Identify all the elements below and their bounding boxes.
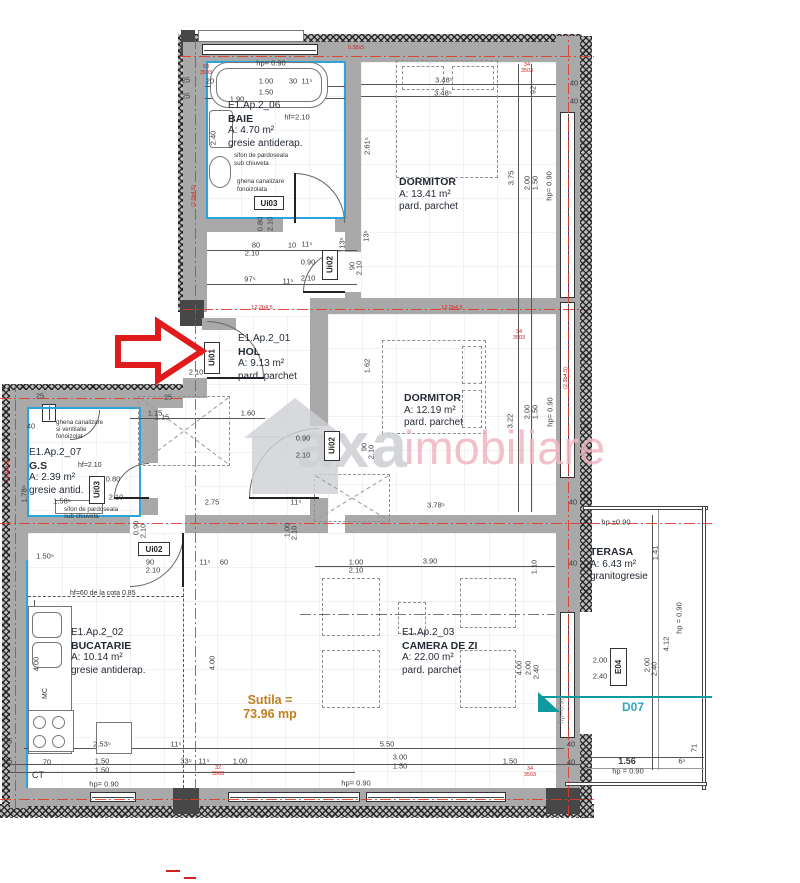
hatch-right-upper	[580, 36, 592, 612]
door-label-ui01: Ui01	[204, 342, 220, 374]
dimension-label: 4.12	[662, 637, 671, 652]
dimension-label: 2.40	[532, 665, 541, 680]
wall-dorm1-left-a	[345, 232, 361, 252]
dimension-label: hp = 0.90	[612, 767, 644, 776]
axis-v-left	[195, 36, 196, 790]
dimension-label: 2.10	[146, 566, 161, 575]
room-area: A: 13.41 m²	[399, 189, 458, 202]
room-area: A: 12.19 m²	[404, 405, 463, 418]
dimension-label: 3.48⁵	[435, 76, 453, 85]
fridge	[96, 722, 132, 754]
dimension-label: 3503	[521, 68, 533, 74]
dimension-label: 0.80	[256, 217, 265, 232]
label-gs: E1.Ap.2_07 G.S A: 2.39 m² gresie antid.	[29, 447, 83, 497]
dimension-label: 2.10	[301, 274, 316, 283]
note-gs-1: ghena canalizare	[56, 419, 103, 426]
dimension-label: 2.75	[205, 498, 220, 507]
dimension-label: 3503	[200, 70, 212, 76]
dimension-label: 3.00	[393, 753, 408, 762]
dimension-label: 71	[690, 744, 699, 752]
dimension-label: 2.10	[245, 249, 260, 258]
dimension-label: 70	[43, 758, 51, 767]
room-name: DORMITOR	[404, 392, 463, 405]
dimension-label: 1.50	[259, 88, 274, 97]
room-name: CAMERA DE ZI	[402, 640, 477, 653]
dimension-label: hp= 0.90	[546, 397, 555, 426]
window-bottom-kitchen	[90, 792, 136, 802]
label-baie: E1.Ap.2_06 BAIE A: 4.70 m² gresie antide…	[228, 100, 303, 150]
dimension-label: 1.41	[651, 546, 660, 561]
wall-pier-entry	[180, 300, 204, 326]
pillow	[462, 390, 482, 428]
dimension-label: 4.00	[515, 661, 524, 676]
dimension-label: 2.10	[266, 217, 275, 232]
dimension-label: hf=2.10	[284, 113, 309, 122]
stove-burner	[52, 735, 65, 748]
dimension-label: 4.00	[32, 657, 41, 672]
room-floor: pard. parchet	[238, 371, 297, 384]
axis-h-mid	[183, 309, 581, 310]
dimension-label: hp = 0.90	[675, 602, 684, 634]
dimension-label: 3.90	[423, 557, 438, 566]
dimension-label: 13⁵	[338, 237, 347, 248]
dimension-label: 2.61⁵	[363, 137, 372, 155]
window-bottom-1	[228, 792, 360, 802]
toilet-baie	[209, 156, 231, 188]
room-floor: granitogresie	[590, 571, 648, 584]
label-camera-de-zi: E1.Ap.2_03 CAMERA DE ZI A: 22.00 m² pard…	[402, 627, 477, 677]
stove-burner	[52, 716, 65, 729]
dimension-label: 2.10	[189, 368, 204, 377]
dimension-label: 1.62	[363, 359, 372, 374]
dimension-label: 3503	[524, 772, 536, 778]
door-label-e04: E04	[610, 648, 627, 686]
dimension-label: hp= 0.90	[256, 59, 285, 68]
dimension-label: 1.90	[230, 95, 245, 104]
window-recess	[198, 30, 304, 42]
closet-hol	[138, 396, 230, 466]
note-baie-2: sub chiuveta	[234, 160, 269, 167]
label-bucatarie: E1.Ap.2_02 BUCATARIE A: 10.14 m² gresie …	[71, 627, 146, 677]
level-line-terasa	[540, 696, 712, 698]
hatch-ext-left	[2, 388, 10, 810]
room-name: DORMITOR	[399, 176, 458, 189]
dimension-label: 2.10	[355, 261, 364, 276]
total-area: Sutila = 73.96 mp	[230, 693, 310, 721]
note-gs-3: fonoizolat	[56, 433, 83, 440]
dimension-label: 1.50	[95, 766, 110, 775]
dimension-label: 2.53⁵	[93, 740, 111, 749]
room-code: E1.Ap.2_02	[71, 627, 146, 640]
dimension-label: (2.5b4.5)	[191, 185, 197, 207]
dimension-label: 11⁵	[283, 277, 294, 286]
dimension-label: 2.10	[349, 566, 364, 575]
pillow	[462, 346, 482, 384]
dimension-label: 60	[220, 558, 228, 567]
room-code: E1.Ap.2_07	[29, 447, 83, 460]
axis-v-right	[568, 36, 569, 816]
room-floor: pard. parchet	[399, 201, 458, 214]
door-leaf-ui02-kitchen	[182, 533, 184, 587]
label-terasa: TERASA A: 6.43 m² granitogresie	[590, 546, 648, 584]
door-label-d07: D07	[622, 700, 644, 714]
dimension-label: 2.40	[593, 672, 608, 681]
dimension-label: 40	[567, 740, 575, 749]
dimension-label: 40	[569, 559, 577, 568]
dimension-label: 11⁵	[171, 740, 182, 749]
room-floor: gresie antid.	[29, 485, 83, 498]
dimension-label: 2.10	[139, 524, 148, 539]
terrace-parapet-bottom	[565, 782, 707, 786]
dimension-label: 33⁵	[180, 757, 191, 766]
dimension-label: 0.90	[189, 349, 204, 358]
label-ct: CT	[32, 770, 44, 780]
axis-h-ext	[0, 398, 184, 399]
terrace-parapet-right	[702, 506, 706, 790]
room-name: HOL	[238, 346, 297, 359]
dim-hf-gs: hf=2.10	[78, 462, 102, 469]
label-mc: MC	[42, 688, 49, 699]
door-label-ui03-gs: Ui03	[89, 476, 105, 504]
dimension-label: 2.10	[109, 493, 124, 502]
floor-plan: axa imobiliare E1.Ap.2_06 BAIE A: 4.70 m…	[0, 0, 800, 883]
note-gs-5: sub chiuveta	[64, 513, 99, 520]
dimension-label: 25	[4, 757, 12, 766]
dimension-label: 10	[288, 241, 296, 250]
sofa-living	[322, 578, 380, 636]
terrace-inner-line-h	[584, 768, 704, 769]
room-name: G.S	[29, 460, 83, 473]
dimension-label: 1.60	[241, 409, 256, 418]
dimension-label: 40	[567, 758, 575, 767]
stove-burner	[33, 716, 46, 729]
dimension-label: 12.2b4.5	[441, 305, 462, 311]
room-floor: gresie antiderap.	[71, 665, 146, 678]
door-label-ui02-kitchen: Ui02	[138, 542, 170, 556]
total-label: Sutila =	[230, 693, 310, 707]
stove-burner	[33, 735, 46, 748]
dimension-label: 13⁵	[362, 230, 371, 241]
dimension-label: 97⁵	[244, 275, 255, 284]
dimension-label: 1.00	[259, 77, 274, 86]
section-line-living	[300, 614, 555, 615]
dim-line	[584, 757, 704, 758]
wall-divider-dorm	[310, 298, 556, 314]
dimension-label: 11⁵	[302, 77, 313, 86]
dimension-label: 1.56	[618, 756, 636, 766]
room-name: BUCATARIE	[71, 640, 146, 653]
dimension-label: 12.2b4.5	[251, 305, 272, 311]
wall-dorm2-left-a	[310, 314, 328, 426]
dimension-label: 3503	[212, 771, 224, 777]
dimension-label: 3.75	[507, 171, 516, 186]
room-area: A: 2.39 m²	[29, 472, 83, 485]
wardrobe-dorm2	[314, 474, 390, 522]
dimension-label: 2.10	[296, 451, 311, 460]
dimension-label: hp= 0.90	[545, 171, 554, 200]
note-baie-3: ghena canalizare	[237, 178, 284, 185]
room-floor: gresie antiderap.	[228, 138, 303, 151]
furniture-living	[460, 578, 516, 628]
room-area: A: 9.13 m²	[238, 358, 297, 371]
dimension-label: 11⁵	[302, 240, 313, 249]
dimension-label: 1.00	[233, 757, 248, 766]
sofa-living	[322, 650, 380, 708]
dashline-bottom-edge	[0, 817, 594, 818]
door-leaf-ui03-baie	[294, 173, 296, 223]
dimension-label: 0.90	[296, 434, 311, 443]
note-gs-2: si ventilatie	[56, 426, 87, 433]
dimension-label: 3503	[513, 335, 525, 341]
dimension-label: 2.10	[367, 445, 376, 460]
dimension-label: 40	[27, 422, 35, 431]
dimension-label: 30	[289, 77, 297, 86]
dimension-label: 92	[529, 86, 538, 94]
dimension-label: 1.50	[503, 757, 518, 766]
dimension-label: 0.38x5	[348, 45, 365, 51]
axis-h-bottom	[0, 799, 594, 800]
dimension-label: 11⁵	[200, 558, 211, 567]
dimension-label: 20	[206, 77, 214, 86]
room-area: A: 22.00 m²	[402, 652, 477, 665]
dim-line	[531, 64, 532, 512]
label-hol: E1.Ap.2_01 HOL A: 9.13 m² pard. parchet	[238, 333, 297, 383]
note-baie-1: sifon de pardoseala	[234, 152, 288, 159]
dimension-label: 0.90	[301, 258, 316, 267]
dimension-label: 1.50	[531, 405, 540, 420]
dimension-label: hp=0.90	[557, 696, 566, 723]
room-floor: pard. parchet	[404, 417, 463, 430]
dimension-label: 2.40	[650, 662, 659, 677]
dimension-label: 1.50	[531, 176, 540, 191]
dimension-label: 5.50	[380, 740, 395, 749]
dim-line	[10, 772, 355, 773]
dimension-label: 1.50⁵	[36, 552, 54, 561]
door-label-ui03-baie: Ui03	[254, 196, 284, 210]
window-baie	[202, 44, 318, 55]
dimension-label: 1.50	[393, 762, 408, 771]
dimension-label: 1.78⁵	[20, 485, 29, 503]
wall-baie-right	[345, 42, 361, 232]
dimension-label: hp= 0.90	[89, 780, 118, 789]
dimension-label: 40	[570, 79, 578, 88]
dimension-label: 1.10	[530, 560, 539, 575]
room-area: A: 4.70 m²	[228, 125, 303, 138]
dimension-label: 1.58⁵	[53, 497, 71, 506]
note-baie-4: fonoizolata	[237, 186, 267, 193]
dimension-label: 6⁵	[678, 757, 685, 766]
dim-line	[518, 64, 519, 512]
dimension-label: 40	[570, 97, 578, 106]
axis-v-ext	[15, 386, 16, 810]
wall-pier-bottom-2	[546, 788, 580, 814]
dimension-label: (2.3b4.5)	[563, 367, 569, 389]
dimension-label: 3.78⁵	[427, 501, 445, 510]
dimension-label: 40	[569, 498, 577, 507]
dimension-label: 25	[36, 392, 44, 401]
door-label-ui02-dorm1: Ui02	[322, 250, 338, 280]
dimension-label: 11⁵	[291, 498, 302, 507]
terrace-parapet-top	[583, 506, 708, 510]
room-floor: pard. parchet	[402, 665, 477, 678]
dimension-label: 25	[182, 92, 190, 101]
dimension-label: 2.40	[209, 131, 218, 146]
window-bottom-2	[366, 792, 506, 802]
kitchen-sink-1	[32, 612, 62, 638]
dimension-label: hp ±0.90	[601, 518, 630, 527]
note-kitchen-hf: hf=60 de la cota 0.85	[70, 590, 136, 597]
dimension-label: 3.22	[506, 414, 515, 429]
wall-pier-bottom-1	[173, 788, 199, 814]
dimension-label: 25	[4, 737, 12, 746]
dimension-label: 1.50	[95, 757, 110, 766]
dimension-label: hp= 0.90	[341, 779, 370, 788]
dimension-label: 25	[164, 393, 172, 402]
dimension-label: 11⁵	[199, 757, 210, 766]
note-gs-4: sifon de pardoseala	[64, 506, 118, 513]
pillow	[452, 66, 494, 90]
dimension-label: 2.00	[593, 656, 608, 665]
dimension-label: 1.15	[155, 413, 170, 422]
door-leaf-ui02-dorm1	[303, 291, 345, 293]
door-leaf-ui02-dorm2	[249, 497, 319, 499]
total-value: 73.96 mp	[230, 707, 310, 721]
wall-gs-right-b	[140, 498, 158, 515]
room-area: A: 6.43 m²	[590, 559, 648, 572]
dimension-label: (2.3b4.5)	[5, 459, 11, 481]
dimension-label: 25	[182, 76, 190, 85]
label-dormitor-1: DORMITOR A: 13.41 m² pard. parchet	[399, 176, 458, 214]
dimension-label: 4.00	[208, 656, 217, 671]
room-code: E1.Ap.2_01	[238, 333, 297, 346]
label-dormitor-2: DORMITOR A: 12.19 m² pard. parchet	[404, 392, 463, 430]
room-code: E1.Ap.2_03	[402, 627, 477, 640]
axis-h-top	[180, 56, 594, 57]
room-name: TERASA	[590, 546, 648, 559]
dimension-label: 3.48⁵	[434, 89, 452, 98]
dimension-label: 0.80	[106, 475, 121, 484]
door-label-ui02-dorm2: Ui02	[324, 431, 340, 461]
room-area: A: 10.14 m²	[71, 652, 146, 665]
dimension-label: 2.10	[290, 526, 299, 541]
